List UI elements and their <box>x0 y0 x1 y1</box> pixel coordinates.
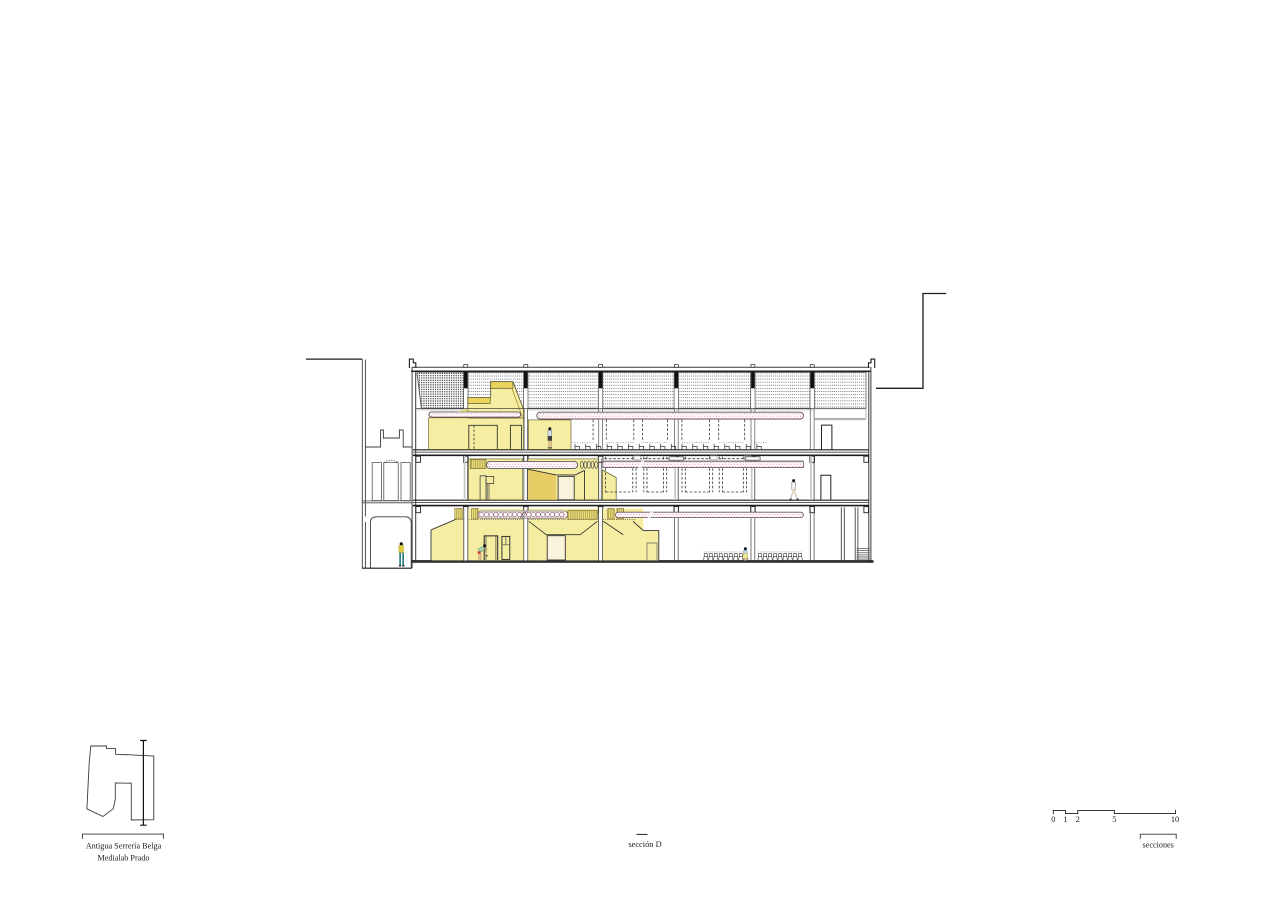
svg-text:secciones: secciones <box>1143 841 1174 850</box>
svg-text:Medialab Prado: Medialab Prado <box>97 854 149 863</box>
svg-text:0: 0 <box>1051 815 1055 824</box>
svg-text:sección D: sección D <box>628 840 661 849</box>
svg-text:1: 1 <box>1063 815 1067 824</box>
svg-text:Antigua Serrería Belga: Antigua Serrería Belga <box>86 842 162 851</box>
svg-text:10: 10 <box>1171 815 1179 824</box>
svg-text:2: 2 <box>1076 815 1080 824</box>
svg-text:5: 5 <box>1112 815 1116 824</box>
